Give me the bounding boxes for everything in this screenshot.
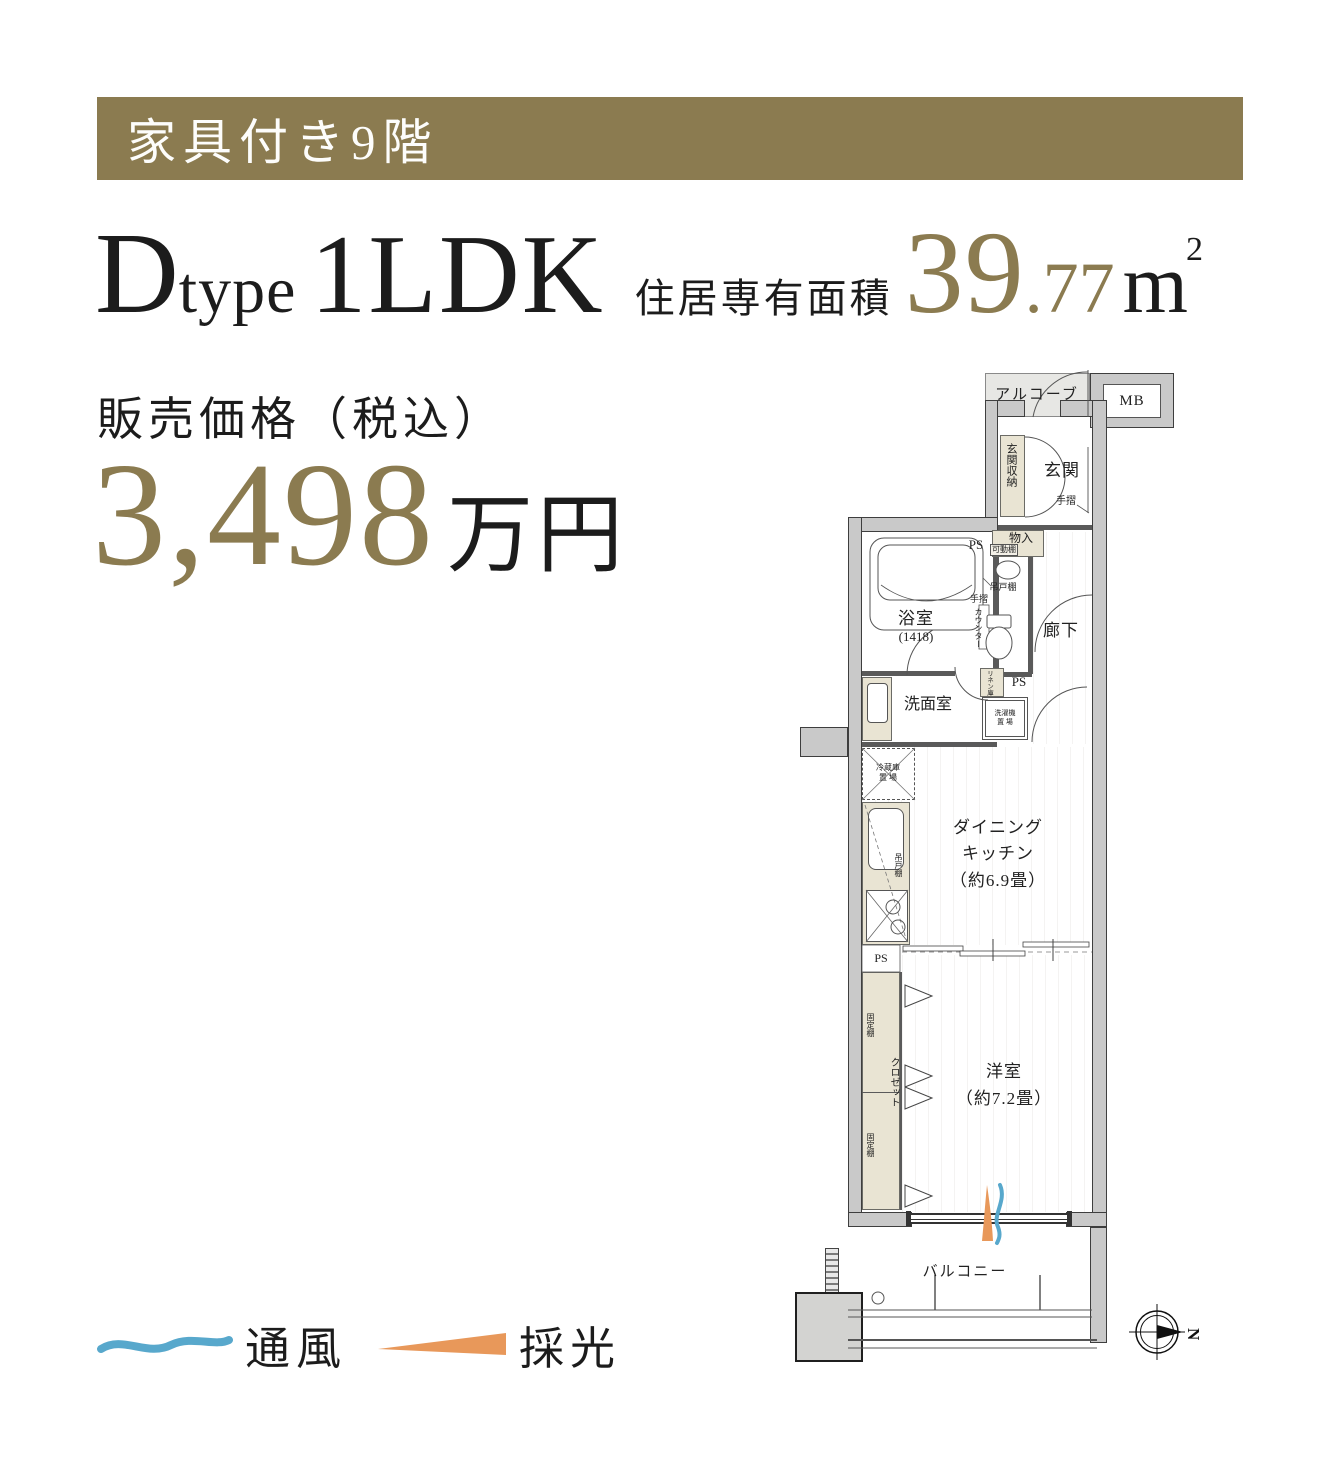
price: 3,498 万円 — [92, 430, 627, 600]
area-value-int: 39 — [905, 205, 1025, 341]
area-unit: m — [1123, 236, 1188, 333]
type-word: type — [179, 253, 297, 329]
bath-size-label: (1418) — [899, 629, 934, 645]
area-label: 住居専有面積 — [635, 266, 893, 324]
ps-label: PS — [969, 537, 983, 553]
hallway-label: 廊下 — [1043, 620, 1079, 641]
flyer-page: { "banner": { "label": "家具付き9階", "bg": "… — [0, 0, 1340, 1460]
legend: 通風 採光 — [95, 1312, 621, 1377]
ps-label: PS — [1012, 674, 1026, 690]
vent-label: 通風 — [245, 1312, 347, 1377]
wedge-icon — [375, 1330, 509, 1360]
dk-label: ダイニングキッチン（約6.9畳） — [950, 815, 1046, 894]
header-banner: 家具付き9階 — [97, 97, 1243, 180]
compass-rose-icon: N — [1129, 1304, 1203, 1360]
bedroom-label: 洋室（約7.2畳） — [956, 1058, 1052, 1112]
banner-label: 家具付き9階 — [127, 103, 439, 174]
area-unit-sup: 2 — [1186, 231, 1203, 269]
fridge-label: 冷蔵庫置 場 — [876, 763, 900, 783]
bath-label: 浴室 — [898, 608, 934, 629]
movable-shelf-label: 可動棚 — [990, 544, 1018, 556]
fixed-shelf-label: 固定棚 — [866, 1133, 874, 1157]
layout-code: 1LDK — [310, 211, 604, 340]
ps-label: PS — [874, 951, 887, 966]
handrail-label: 手摺 — [1056, 496, 1076, 509]
price-value: 3,498 — [92, 430, 435, 600]
light-label: 採光 — [519, 1312, 621, 1377]
entry-label: 玄関 — [1044, 460, 1080, 481]
balcony-label: バルコニー — [923, 1263, 1008, 1282]
alcove-label: アルコーブ — [995, 386, 1079, 405]
counter-label: カウンター — [974, 608, 982, 648]
closet-label: クロゼット — [888, 1057, 898, 1107]
entry-storage-label: 玄関収納 — [1005, 443, 1016, 487]
mb-label: MB — [1119, 392, 1144, 411]
handrail-label: 手摺 — [970, 594, 988, 605]
washer-label: 洗濯機置 場 — [995, 709, 1016, 727]
north-label: N — [1184, 1328, 1203, 1341]
floor-plan: N アルコーブ MB 玄関収納 玄関 手摺 PS 物入 可動棚 浴室 (1418… — [795, 365, 1260, 1370]
hanging-cupboard-label: 吊戸棚 — [894, 853, 902, 877]
unit-title: D type 1LDK 住居専有面積 39 .77 m 2 — [95, 205, 1255, 341]
washroom-label: 洗面室 — [904, 695, 952, 715]
fixed-shelf-label: 固定棚 — [866, 1013, 874, 1037]
wave-stroke-icon — [95, 1327, 235, 1363]
type-letter: D — [95, 208, 179, 341]
hanging-cupboard-label: 吊戸棚 — [989, 582, 1016, 593]
area-value-dec: .77 — [1025, 247, 1115, 330]
linen-label: リネン庫 — [985, 670, 992, 696]
price-unit: 万円 — [447, 464, 627, 589]
